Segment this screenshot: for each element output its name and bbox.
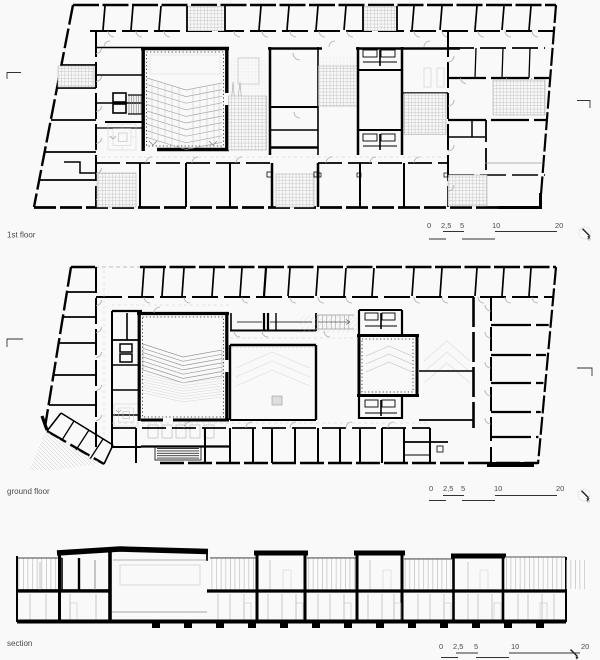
- svg-text:10: 10: [492, 221, 500, 230]
- svg-text:0: 0: [439, 642, 443, 651]
- svg-text:0: 0: [429, 484, 433, 493]
- svg-text:2,5: 2,5: [441, 221, 451, 230]
- svg-text:10: 10: [511, 642, 519, 651]
- svg-text:20: 20: [581, 642, 589, 651]
- svg-text:1st floor: 1st floor: [7, 231, 36, 240]
- svg-text:5: 5: [474, 642, 478, 651]
- svg-text:5: 5: [461, 484, 465, 493]
- svg-text:2,5: 2,5: [453, 642, 463, 651]
- svg-text:20: 20: [556, 484, 564, 493]
- svg-text:ground floor: ground floor: [7, 487, 50, 496]
- svg-text:10: 10: [494, 484, 502, 493]
- svg-text:0: 0: [427, 221, 431, 230]
- svg-text:5: 5: [460, 221, 464, 230]
- svg-text:section: section: [7, 639, 32, 648]
- svg-text:2,5: 2,5: [443, 484, 453, 493]
- svg-text:20: 20: [555, 221, 563, 230]
